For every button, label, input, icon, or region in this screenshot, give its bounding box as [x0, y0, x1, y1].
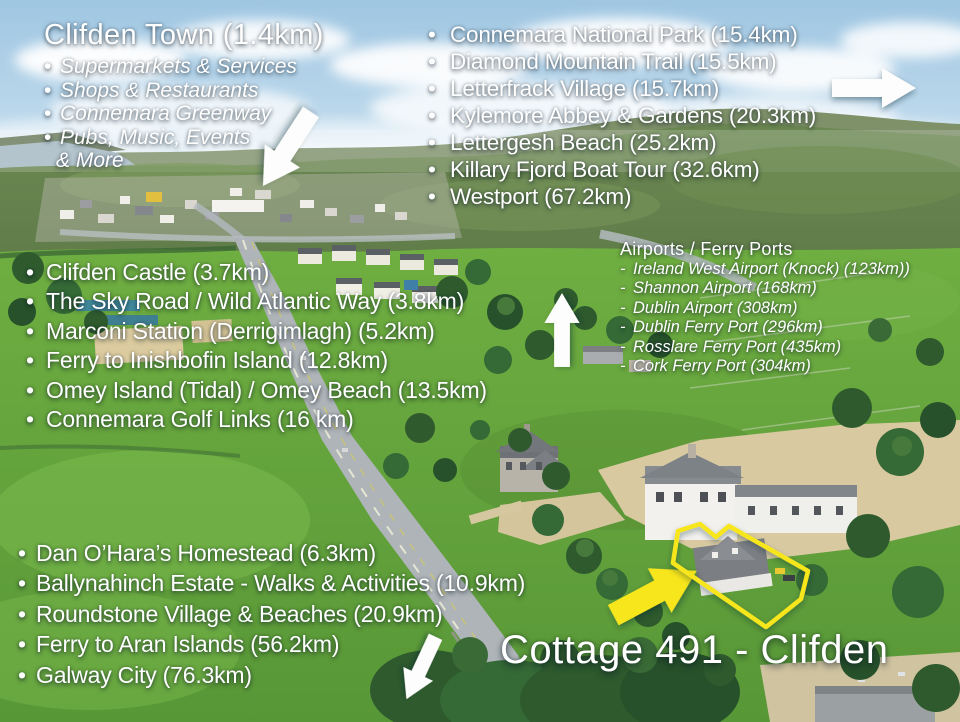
bullet-icon: •: [26, 405, 46, 434]
list-item: •Kylemore Abbey & Gardens (20.3km): [428, 102, 816, 129]
list-item: •The Sky Road / Wild Atlantic Way (3.8km…: [26, 287, 487, 316]
list-item: -Shannon Airport (168km): [620, 279, 910, 298]
bullet-icon: •: [428, 156, 450, 183]
bullet-icon: •: [44, 126, 60, 150]
west-attractions-arrow-up-icon: [544, 293, 579, 367]
list-item: -Ireland West Airport (Knock) (123km)): [620, 260, 910, 279]
list-item: •Dan O’Hara’s Homestead (6.3km): [18, 538, 525, 568]
airports-ferry-block: Airports / Ferry Ports -Ireland West Air…: [620, 238, 910, 376]
dash-icon: -: [620, 299, 633, 318]
list-item: •Roundstone Village & Beaches (20.9km): [18, 599, 525, 629]
west-attractions-block: •Clifden Castle (3.7km) •The Sky Road / …: [26, 258, 487, 434]
annotated-aerial-map: Clifden Town (1.4km) •Supermarkets & Ser…: [0, 0, 960, 722]
dash-icon: -: [620, 318, 633, 337]
bullet-icon: •: [428, 48, 450, 75]
bullet-icon: •: [26, 258, 46, 287]
list-item: •Connemara Greenway: [44, 102, 324, 126]
bullet-icon: •: [44, 102, 60, 126]
clifden-town-heading: Clifden Town (1.4km): [44, 18, 324, 52]
bullet-icon: •: [26, 317, 46, 346]
cottage-pointer-arrow-icon: [601, 549, 708, 638]
bullet-icon: •: [44, 55, 60, 79]
bullet-icon: •: [26, 287, 46, 316]
list-item: •Supermarkets & Services: [44, 55, 324, 79]
bullet-icon: •: [428, 75, 450, 102]
list-item: •Letterfrack Village (15.7km): [428, 75, 816, 102]
south-attractions-block: •Dan O’Hara’s Homestead (6.3km) •Ballyna…: [18, 538, 525, 690]
list-item: •Galway City (76.3km): [18, 660, 525, 690]
list-item: •Lettergesh Beach (25.2km): [428, 129, 816, 156]
dash-icon: -: [620, 338, 633, 357]
bullet-icon: •: [428, 129, 450, 156]
bullet-icon: •: [428, 21, 450, 48]
bullet-icon: •: [18, 660, 36, 690]
list-item: •Ballynahinch Estate - Walks & Activitie…: [18, 568, 525, 598]
list-item: •Diamond Mountain Trail (15.5km): [428, 48, 816, 75]
list-item: •Clifden Castle (3.7km): [26, 258, 487, 287]
list-item: •Killary Fjord Boat Tour (32.6km): [428, 156, 816, 183]
bullet-icon: •: [428, 183, 450, 210]
bullet-icon: •: [26, 376, 46, 405]
property-boundary-outline: [673, 524, 808, 627]
list-item-continuation: & More: [44, 149, 324, 173]
list-item: •Shops & Restaurants: [44, 79, 324, 103]
airports-heading: Airports / Ferry Ports: [620, 238, 910, 260]
north-attractions-block: •Connemara National Park (15.4km) •Diamo…: [428, 21, 816, 210]
bullet-icon: •: [18, 538, 36, 568]
list-item: -Cork Ferry Port (304km): [620, 357, 910, 376]
dash-icon: -: [620, 260, 633, 279]
bullet-icon: •: [26, 346, 46, 375]
list-item: •Pubs, Music, Events: [44, 126, 324, 150]
list-item: •Connemara National Park (15.4km): [428, 21, 816, 48]
list-item: •Ferry to Inishbofin Island (12.8km): [26, 346, 487, 375]
list-item: •Connemara Golf Links (16 km): [26, 405, 487, 434]
list-item: -Dublin Airport (308km): [620, 299, 910, 318]
south-attractions-list: •Dan O’Hara’s Homestead (6.3km) •Ballyna…: [18, 538, 525, 690]
bullet-icon: •: [18, 599, 36, 629]
list-item: •Westport (67.2km): [428, 183, 816, 210]
bullet-icon: •: [428, 102, 450, 129]
bullet-icon: •: [18, 568, 36, 598]
bullet-icon: •: [18, 629, 36, 659]
list-item: -Dublin Ferry Port (296km): [620, 318, 910, 337]
list-item: -Rosslare Ferry Port (435km): [620, 338, 910, 357]
north-attractions-arrow-right-icon: [832, 68, 916, 108]
list-item: •Marconi Station (Derrigimlagh) (5.2km): [26, 317, 487, 346]
north-attractions-list: •Connemara National Park (15.4km) •Diamo…: [428, 21, 816, 210]
dash-icon: -: [620, 279, 633, 298]
bullet-icon: •: [44, 79, 60, 103]
dash-icon: -: [620, 357, 633, 376]
list-item: •Omey Island (Tidal) / Omey Beach (13.5k…: [26, 376, 487, 405]
clifden-town-block: Clifden Town (1.4km) •Supermarkets & Ser…: [44, 18, 324, 173]
list-item: •Ferry to Aran Islands (56.2km): [18, 629, 525, 659]
airports-list: -Ireland West Airport (Knock) (123km)) -…: [620, 260, 910, 376]
west-attractions-list: •Clifden Castle (3.7km) •The Sky Road / …: [26, 258, 487, 434]
property-title: Cottage 491 - Clifden: [500, 628, 889, 673]
clifden-town-list: •Supermarkets & Services •Shops & Restau…: [44, 55, 324, 173]
